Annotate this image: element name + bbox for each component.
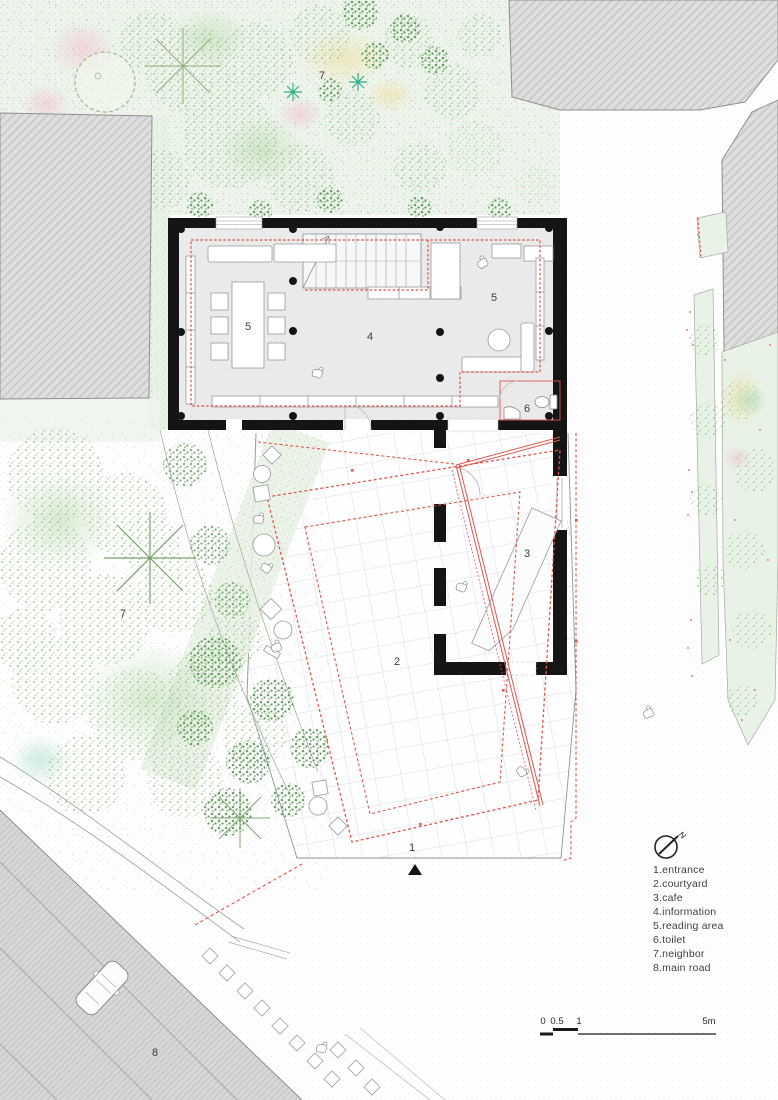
chair [211,293,228,310]
branch-tree-icon [210,788,270,848]
branch-tree-icon [104,512,196,604]
label-neighbor-top: 7 [319,70,325,82]
toilet-icon [535,395,557,409]
scale-label-0: 0 [540,1016,545,1027]
neighbor-building-north [509,0,778,110]
legend-item-reading-area: 5.reading area [653,919,724,933]
legend-item-courtyard: 2.courtyard [653,877,724,891]
label-entrance: 1 [409,842,415,854]
label-main-road: 8 [152,1047,158,1059]
label-toilet: 6 [524,403,530,415]
scale-label-05: 0.5 [550,1016,563,1027]
sofa [208,246,272,262]
legend-item-information: 4.information [653,905,724,919]
chair [211,317,228,334]
label-reading-area-lounge: 5 [491,292,497,304]
chair [211,343,228,360]
outdoor-table-round [253,534,275,556]
legend-item-toilet: 6.toilet [653,933,724,947]
building-plan [168,217,567,431]
chair [268,317,285,334]
outdoor-table-round [254,466,271,483]
branch-tree-icon [145,28,221,104]
label-information: 4 [367,331,373,343]
lounge-sofa [521,323,534,372]
outdoor-table-round [309,797,327,815]
label-neighbor-west: 7 [120,608,126,620]
counter-return [431,243,460,299]
legend-item-cafe: 3.cafe [653,891,724,905]
vegetation-west [0,420,330,890]
lounge-sofa [462,357,522,372]
chair [268,293,285,310]
scale-label-1: 1 [576,1016,581,1027]
neighbor-building-west [0,113,152,399]
outlined-tree-icon [75,52,135,112]
legend-item-neighbor: 7.neighbor [653,947,724,961]
cabinet [492,244,521,258]
outdoor-table-square [253,485,270,502]
round-table [488,329,510,351]
legend: 1.entrance 2.courtyard 3.cafe 4.informat… [653,863,724,975]
legend-item-entrance: 1.entrance [653,863,724,877]
label-reading-area-table: 5 [245,321,251,333]
low-shelf [212,396,498,407]
sofa [274,244,336,262]
legend-item-main-road: 8.main road [653,961,724,975]
label-cafe: 3 [524,548,530,560]
chair [268,343,285,360]
site-plan-canvas: N 0 0.5 1 5m 7 5 4 5 6 3 2 1 7 8 1.entra… [0,0,778,1100]
label-courtyard: 2 [394,656,400,668]
outdoor-table-square [312,780,328,796]
scale-label-5m: 5m [702,1016,715,1027]
outdoor-table-round [274,621,292,639]
